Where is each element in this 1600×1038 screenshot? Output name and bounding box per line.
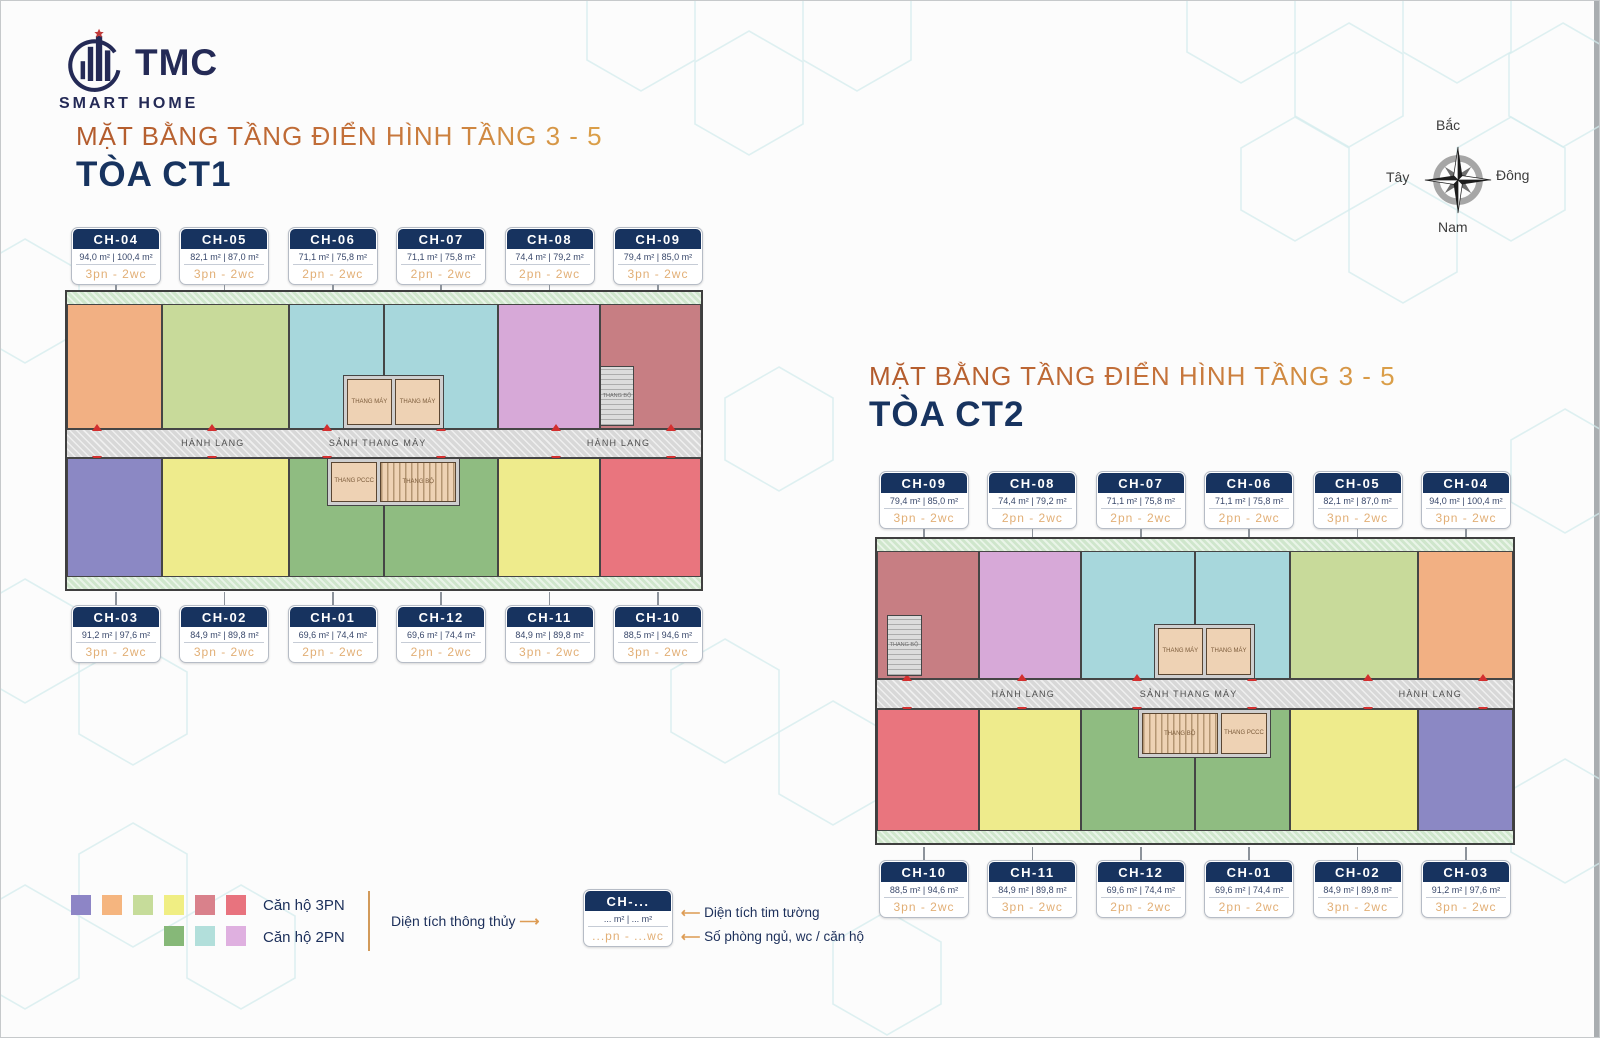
apartment-ch-02 — [162, 458, 289, 577]
unit-callout: CH-10 88,5 m² | 94,6 m² 3pn - 2wc — [879, 847, 969, 918]
unit-rooms-label: 3pn - 2wc — [72, 265, 160, 284]
unit-area-label: 74,4 m² | 79,2 m² — [992, 493, 1072, 509]
apartment-ch-04 — [1418, 551, 1513, 679]
arrow-right-icon: ⟶ — [519, 913, 539, 929]
unit-rooms-label: 3pn - 2wc — [1314, 898, 1402, 917]
compass-east-label: Đông — [1496, 167, 1529, 183]
unit-rooms-label: 3pn - 2wc — [180, 643, 268, 662]
lobby-label: SẢNH THANG MÁY — [1140, 689, 1238, 699]
ct1-bottom-callout-row: CH-03 91,2 m² | 97,6 m² 3pn - 2wc CH-02 … — [71, 592, 703, 663]
unit-area-label: 69,6 m² | 74,4 m² — [1209, 882, 1289, 898]
unit-code-label: CH-10 — [615, 607, 701, 627]
ct2-title-block: MẶT BẰNG TẦNG ĐIỂN HÌNH TẦNG 3 - 5 TÒA C… — [869, 361, 1396, 435]
unit-code-label: CH-07 — [1098, 473, 1184, 493]
unit-callout-box: CH-04 94,0 m² | 100,4 m² 3pn - 2wc — [71, 227, 161, 285]
unit-code-label: CH-04 — [1423, 473, 1509, 493]
legend-rooms-label: ⟵ Số phòng ngủ, wc / căn hộ — [681, 929, 864, 945]
unit-rooms-label: 2pn - 2wc — [506, 265, 594, 284]
entry-arrow-icon — [1132, 674, 1142, 681]
unit-code-label: CH-11 — [989, 862, 1075, 882]
entry-arrow-icon — [1478, 674, 1488, 681]
unit-callout: CH-06 71,1 m² | 75,8 m² 2pn - 2wc — [288, 227, 378, 298]
legend-color-swatch — [195, 926, 215, 946]
unit-callout: CH-08 74,4 m² | 79,2 m² 2pn - 2wc — [505, 227, 595, 298]
unit-callout-box: CH-02 84,9 m² | 89,8 m² 3pn - 2wc — [1313, 860, 1403, 918]
rooms-text: Số phòng ngủ, wc / căn hộ — [704, 929, 864, 944]
side-stair-box: THANG BỘ — [600, 366, 635, 425]
legend-color-swatch — [71, 895, 91, 915]
unit-callout: CH-11 84,9 m² | 89,8 m² 3pn - 2wc — [505, 592, 595, 663]
unit-callout: CH-05 82,1 m² | 87,0 m² 3pn - 2wc — [1313, 471, 1403, 542]
apartment-ch-05 — [1290, 551, 1417, 679]
unit-callout: CH-09 79,4 m² | 85,0 m² 3pn - 2wc — [879, 471, 969, 542]
ct1-tower-name: TÒA CT1 — [76, 155, 603, 195]
unit-code-label: CH-05 — [181, 229, 267, 249]
unit-callout: CH-01 69,6 m² | 74,4 m² 2pn - 2wc — [1204, 847, 1294, 918]
unit-code-label: CH-08 — [507, 229, 593, 249]
compass-rose-icon — [1422, 144, 1494, 216]
unit-code-label: CH-02 — [1315, 862, 1401, 882]
unit-callout-box: CH-08 74,4 m² | 79,2 m² 2pn - 2wc — [987, 471, 1077, 529]
compass-north-label: Bắc — [1436, 117, 1460, 133]
unit-callout: CH-07 71,1 m² | 75,8 m² 2pn - 2wc — [396, 227, 486, 298]
unit-callout-box: CH-07 71,1 m² | 75,8 m² 2pn - 2wc — [396, 227, 486, 285]
unit-area-label: 71,1 m² | 75,8 m² — [293, 249, 373, 265]
unit-area-label: 91,2 m² | 97,6 m² — [1426, 882, 1506, 898]
legend-2pn-swatches — [164, 926, 246, 946]
unit-area-label: 94,0 m² | 100,4 m² — [76, 249, 156, 265]
ct2-bottom-callout-row: CH-10 88,5 m² | 94,6 m² 3pn - 2wc CH-11 … — [879, 847, 1511, 918]
unit-rooms-label: 3pn - 2wc — [988, 898, 1076, 917]
unit-code-label: CH-01 — [1206, 862, 1292, 882]
unit-callout-box: CH-12 69,6 m² | 74,4 m² 2pn - 2wc — [1096, 860, 1186, 918]
unit-callout: CH-12 69,6 m² | 74,4 m² 2pn - 2wc — [1096, 847, 1186, 918]
unit-callout-box: CH-01 69,6 m² | 74,4 m² 2pn - 2wc — [1204, 860, 1294, 918]
unit-area-label: 88,5 m² | 94,6 m² — [884, 882, 964, 898]
unit-rooms-label: 3pn - 2wc — [880, 509, 968, 528]
unit-callout-box: CH-12 69,6 m² | 74,4 m² 2pn - 2wc — [396, 605, 486, 663]
apartment-ch-03 — [1418, 709, 1513, 831]
legend-2pn-label: Căn hộ 2PN — [263, 929, 345, 946]
apartment-ch-11 — [979, 709, 1081, 831]
unit-code-label: CH-08 — [989, 473, 1075, 493]
ct2-corridor: HÀNH LANG SẢNH THANG MÁY HÀNH LANG — [877, 679, 1513, 709]
elevator-box: THANG MÁY — [347, 379, 392, 424]
unit-area-label: 79,4 m² | 85,0 m² — [884, 493, 964, 509]
callout-connector-line — [923, 847, 925, 860]
entry-arrow-icon — [551, 424, 561, 431]
legend-color-swatch — [164, 895, 184, 915]
unit-code-label: CH-05 — [1315, 473, 1401, 493]
hallway-label: HÀNH LANG — [587, 438, 650, 448]
unit-area-label: 71,1 m² | 75,8 m² — [1209, 493, 1289, 509]
callout-connector-line — [1032, 847, 1034, 860]
unit-callout-box: CH-11 84,9 m² | 89,8 m² 3pn - 2wc — [505, 605, 595, 663]
unit-callout-box: CH-04 94,0 m² | 100,4 m² 3pn - 2wc — [1421, 471, 1511, 529]
unit-area-label: 84,9 m² | 89,8 m² — [510, 627, 590, 643]
callout-connector-line — [1248, 847, 1250, 860]
unit-code-label: CH-09 — [615, 229, 701, 249]
unit-area-label: 84,9 m² | 89,8 m² — [1318, 882, 1398, 898]
unit-callout: CH-02 84,9 m² | 89,8 m² 3pn - 2wc — [179, 592, 269, 663]
balcony-strip — [67, 577, 701, 589]
apartment-ch-02 — [1290, 709, 1417, 831]
unit-code-label: CH-04 — [73, 229, 159, 249]
ct2-tower-name: TÒA CT2 — [869, 395, 1396, 435]
unit-callout-box: CH-03 91,2 m² | 97,6 m² 3pn - 2wc — [71, 605, 161, 663]
unit-callout-box: CH-05 82,1 m² | 87,0 m² 3pn - 2wc — [179, 227, 269, 285]
legend-3pn-label: Căn hộ 3PN — [263, 897, 345, 914]
unit-code-label: CH-01 — [290, 607, 376, 627]
unit-code-label: CH-03 — [73, 607, 159, 627]
unit-code-label: CH-07 — [398, 229, 484, 249]
legend-color-swatch — [102, 895, 122, 915]
tmc-logo: TMC SMART HOME — [59, 27, 229, 113]
callout-connector-line — [440, 592, 442, 605]
unit-code-label: CH-02 — [181, 607, 267, 627]
unit-area-label: 84,9 m² | 89,8 m² — [184, 627, 264, 643]
gross-area-text: Diện tích tim tường — [704, 905, 819, 920]
apartment-ch-04 — [67, 304, 162, 429]
unit-callout: CH-10 88,5 m² | 94,6 m² 3pn - 2wc — [613, 592, 703, 663]
unit-rooms-label: 3pn - 2wc — [614, 265, 702, 284]
unit-area-label: 79,4 m² | 85,0 m² — [618, 249, 698, 265]
elevator-box: THANG MÁY — [395, 379, 440, 424]
unit-callout-box: CH-09 79,4 m² | 85,0 m² 3pn - 2wc — [879, 471, 969, 529]
apartment-ch-05 — [162, 304, 289, 429]
unit-rooms-label: 2pn - 2wc — [289, 265, 377, 284]
unit-callout-box: CH-11 84,9 m² | 89,8 m² 3pn - 2wc — [987, 860, 1077, 918]
lobby-label: SẢNH THANG MÁY — [329, 438, 427, 448]
unit-rooms-label: 3pn - 2wc — [1314, 509, 1402, 528]
elevator-box: THANG MÁY — [1158, 628, 1203, 675]
unit-code-label: CH-10 — [881, 862, 967, 882]
logo-brand-text: TMC — [135, 42, 218, 84]
legend-sample-callout: CH-... ... m² | ... m² ...pn - ...wc — [583, 889, 673, 947]
legend-color-swatch — [195, 895, 215, 915]
unit-rooms-label: 3pn - 2wc — [180, 265, 268, 284]
unit-callout-box: CH-08 74,4 m² | 79,2 m² 2pn - 2wc — [505, 227, 595, 285]
unit-code-label: CH-11 — [507, 607, 593, 627]
unit-area-label: 69,6 m² | 74,4 m² — [293, 627, 373, 643]
unit-callout: CH-11 84,9 m² | 89,8 m² 3pn - 2wc — [987, 847, 1077, 918]
unit-area-label: 82,1 m² | 87,0 m² — [1318, 493, 1398, 509]
ct1-corridor: HÀNH LANG SẢNH THANG MÁY HÀNH LANG — [67, 429, 701, 459]
unit-rooms-label: 2pn - 2wc — [1205, 898, 1293, 917]
legend-color-swatch — [133, 895, 153, 915]
unit-callout-box: CH-06 71,1 m² | 75,8 m² 2pn - 2wc — [1204, 471, 1294, 529]
entry-arrow-icon — [322, 424, 332, 431]
callout-connector-line — [1140, 847, 1142, 860]
unit-rooms-label: 2pn - 2wc — [1205, 509, 1293, 528]
unit-rooms-label: 2pn - 2wc — [988, 509, 1076, 528]
unit-callout: CH-09 79,4 m² | 85,0 m² 3pn - 2wc — [613, 227, 703, 298]
unit-callout-box: CH-05 82,1 m² | 87,0 m² 3pn - 2wc — [1313, 471, 1403, 529]
unit-callout: CH-02 84,9 m² | 89,8 m² 3pn - 2wc — [1313, 847, 1403, 918]
unit-callout-box: CH-01 69,6 m² | 74,4 m² 2pn - 2wc — [288, 605, 378, 663]
apartment-ch-08 — [979, 551, 1081, 679]
stair-box: THANG BỘ — [1142, 713, 1218, 754]
elevator-core: THANG MÁY THANG MÁY — [343, 375, 444, 428]
legend: Căn hộ 3PN Căn hộ 2PN Diện tích thông th… — [63, 885, 833, 965]
callout-connector-line — [657, 592, 659, 605]
unit-callout: CH-05 82,1 m² | 87,0 m² 3pn - 2wc — [179, 227, 269, 298]
unit-callout: CH-03 91,2 m² | 97,6 m² 3pn - 2wc — [71, 592, 161, 663]
unit-rooms-label: 3pn - 2wc — [614, 643, 702, 662]
ct1-title-block: MẶT BẰNG TẦNG ĐIỂN HÌNH TẦNG 3 - 5 TÒA C… — [76, 121, 603, 195]
unit-area-label: 94,0 m² | 100,4 m² — [1426, 493, 1506, 509]
unit-area-label: 71,1 m² | 75,8 m² — [1101, 493, 1181, 509]
unit-callout: CH-03 91,2 m² | 97,6 m² 3pn - 2wc — [1421, 847, 1511, 918]
unit-callout-box: CH-07 71,1 m² | 75,8 m² 2pn - 2wc — [1096, 471, 1186, 529]
fire-stair-box: THANG PCCC — [331, 462, 377, 502]
balcony-strip — [877, 831, 1513, 843]
entry-arrow-icon — [666, 424, 676, 431]
side-stair-box: THANG BỘ — [887, 615, 922, 676]
brochure-page: TMC SMART HOME Bắc Đông Nam Tây MẶ — [0, 0, 1600, 1038]
entry-arrow-icon — [1017, 674, 1027, 681]
legend-color-swatch — [226, 926, 246, 946]
unit-code-label: CH-12 — [398, 607, 484, 627]
unit-callout: CH-08 74,4 m² | 79,2 m² 2pn - 2wc — [987, 471, 1077, 542]
unit-code-label: CH-12 — [1098, 862, 1184, 882]
stair-box: THANG BỘ — [380, 462, 456, 502]
legend-color-swatch — [226, 895, 246, 915]
unit-callout-box: CH-10 88,5 m² | 94,6 m² 3pn - 2wc — [879, 860, 969, 918]
unit-rooms-label: 2pn - 2wc — [1097, 509, 1185, 528]
arrow-left-icon: ⟵ — [681, 929, 700, 944]
unit-callout: CH-01 69,6 m² | 74,4 m² 2pn - 2wc — [288, 592, 378, 663]
unit-callout: CH-04 94,0 m² | 100,4 m² 3pn - 2wc — [1421, 471, 1511, 542]
unit-callout: CH-06 71,1 m² | 75,8 m² 2pn - 2wc — [1204, 471, 1294, 542]
sample-code-label: CH-... — [585, 891, 671, 911]
unit-callout: CH-04 94,0 m² | 100,4 m² 3pn - 2wc — [71, 227, 161, 298]
compass-south-label: Nam — [1438, 219, 1468, 235]
callout-connector-line — [549, 592, 551, 605]
unit-rooms-label: 2pn - 2wc — [289, 643, 377, 662]
apartment-ch-11 — [498, 458, 599, 577]
stair-core: THANG PCCC THANG BỘ — [1138, 709, 1272, 758]
unit-rooms-label: 2pn - 2wc — [397, 643, 485, 662]
callout-connector-line — [1465, 847, 1467, 860]
legend-gross-area-label: ⟵ Diện tích tim tường — [681, 905, 820, 921]
apartment-ch-08 — [498, 304, 599, 429]
unit-code-label: CH-09 — [881, 473, 967, 493]
callout-connector-line — [115, 592, 117, 605]
sample-area-label: ... m² | ... m² — [588, 911, 668, 927]
unit-area-label: 71,1 m² | 75,8 m² — [401, 249, 481, 265]
unit-callout-box: CH-02 84,9 m² | 89,8 m² 3pn - 2wc — [179, 605, 269, 663]
hallway-label: HÀNH LANG — [181, 438, 244, 448]
compass-west-label: Tây — [1386, 169, 1409, 185]
page-edge-strip — [1594, 1, 1599, 1037]
unit-code-label: CH-03 — [1423, 862, 1509, 882]
hallway-label: HÀNH LANG — [992, 689, 1055, 699]
apartment-ch-10 — [877, 709, 979, 831]
unit-area-label: 69,6 m² | 74,4 m² — [401, 627, 481, 643]
legend-clear-area-label: Diện tích thông thủy ⟶ — [391, 913, 540, 930]
unit-callout-box: CH-06 71,1 m² | 75,8 m² 2pn - 2wc — [288, 227, 378, 285]
unit-rooms-label: 3pn - 2wc — [880, 898, 968, 917]
compass: Bắc Đông Nam Tây — [1386, 111, 1531, 243]
apartment-ch-10 — [600, 458, 701, 577]
unit-code-label: CH-06 — [1206, 473, 1292, 493]
entry-arrow-icon — [207, 424, 217, 431]
unit-callout: CH-12 69,6 m² | 74,4 m² 2pn - 2wc — [396, 592, 486, 663]
apartment-ch-03 — [67, 458, 162, 577]
ct1-top-callout-row: CH-04 94,0 m² | 100,4 m² 3pn - 2wc CH-05… — [71, 227, 703, 298]
balcony-strip — [877, 539, 1513, 551]
unit-rooms-label: 3pn - 2wc — [506, 643, 594, 662]
legend-3pn-swatches — [71, 895, 246, 915]
unit-callout-box: CH-09 79,4 m² | 85,0 m² 3pn - 2wc — [613, 227, 703, 285]
stair-core: THANG PCCC THANG BỘ — [327, 458, 460, 506]
ct2-floorplan: HÀNH LANG SẢNH THANG MÁY HÀNH LANG THANG… — [875, 537, 1515, 845]
unit-callout-box: CH-10 88,5 m² | 94,6 m² 3pn - 2wc — [613, 605, 703, 663]
legend-divider — [368, 891, 370, 951]
callout-connector-line — [1357, 847, 1359, 860]
unit-area-label: 84,9 m² | 89,8 m² — [992, 882, 1072, 898]
unit-rooms-label: 3pn - 2wc — [1422, 509, 1510, 528]
unit-rooms-label: 3pn - 2wc — [1422, 898, 1510, 917]
callout-connector-line — [224, 592, 226, 605]
elevator-core: THANG MÁY THANG MÁY — [1154, 624, 1256, 679]
elevator-box: THANG MÁY — [1206, 628, 1251, 675]
unit-area-label: 82,1 m² | 87,0 m² — [184, 249, 264, 265]
legend-color-swatch — [164, 926, 184, 946]
unit-area-label: 69,6 m² | 74,4 m² — [1101, 882, 1181, 898]
balcony-strip — [67, 292, 701, 304]
ct1-floor-title: MẶT BẰNG TẦNG ĐIỂN HÌNH TẦNG 3 - 5 — [76, 121, 603, 152]
callout-connector-line — [332, 592, 334, 605]
unit-area-label: 74,4 m² | 79,2 m² — [510, 249, 590, 265]
unit-area-label: 88,5 m² | 94,6 m² — [618, 627, 698, 643]
entry-arrow-icon — [1363, 674, 1373, 681]
unit-callout: CH-07 71,1 m² | 75,8 m² 2pn - 2wc — [1096, 471, 1186, 542]
unit-rooms-label: 2pn - 2wc — [1097, 898, 1185, 917]
unit-callout-box: CH-03 91,2 m² | 97,6 m² 3pn - 2wc — [1421, 860, 1511, 918]
fire-stair-box: THANG PCCC — [1221, 713, 1268, 754]
tmc-building-icon — [59, 27, 131, 99]
ct2-floor-title: MẶT BẰNG TẦNG ĐIỂN HÌNH TẦNG 3 - 5 — [869, 361, 1396, 392]
ct2-top-callout-row: CH-09 79,4 m² | 85,0 m² 3pn - 2wc CH-08 … — [879, 471, 1511, 542]
ct1-floorplan: HÀNH LANG SẢNH THANG MÁY HÀNH LANG THANG… — [65, 290, 703, 591]
unit-rooms-label: 3pn - 2wc — [72, 643, 160, 662]
unit-area-label: 91,2 m² | 97,6 m² — [76, 627, 156, 643]
logo-subtitle-text: SMART HOME — [59, 95, 229, 113]
clear-area-text: Diện tích thông thủy — [391, 913, 516, 929]
hallway-label: HÀNH LANG — [1399, 689, 1462, 699]
unit-code-label: CH-06 — [290, 229, 376, 249]
arrow-left-icon: ⟵ — [681, 905, 700, 920]
entry-arrow-icon — [92, 424, 102, 431]
sample-rooms-label: ...pn - ...wc — [584, 927, 672, 946]
unit-rooms-label: 2pn - 2wc — [397, 265, 485, 284]
